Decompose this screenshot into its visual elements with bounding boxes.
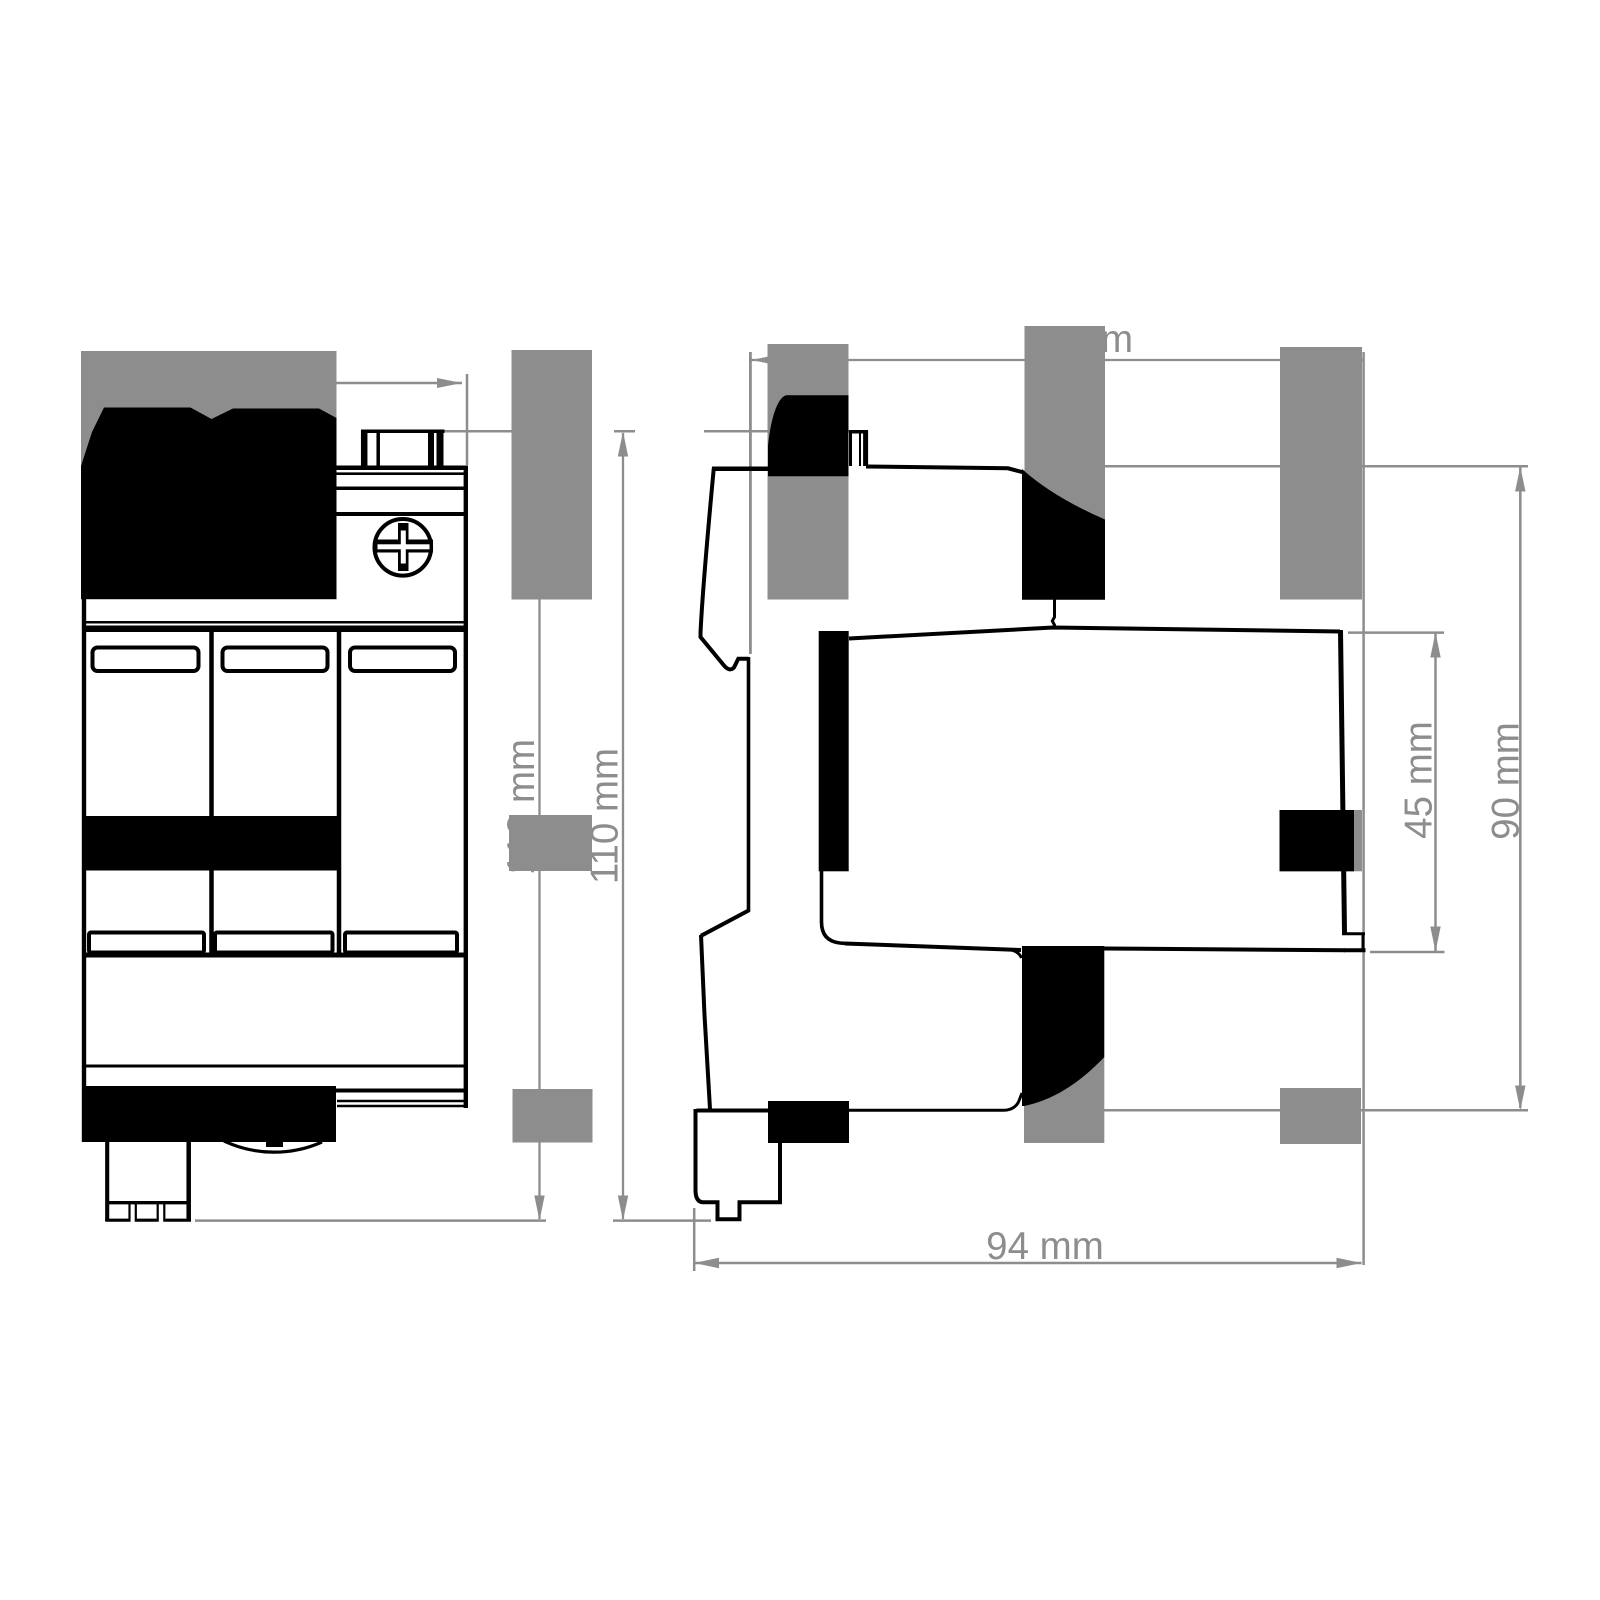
svg-text:m: m [1101, 318, 1133, 361]
svg-text:45 mm: 45 mm [1398, 721, 1441, 839]
svg-text:94 mm: 94 mm [986, 1225, 1104, 1268]
svg-text:90 mm: 90 mm [1485, 722, 1528, 840]
